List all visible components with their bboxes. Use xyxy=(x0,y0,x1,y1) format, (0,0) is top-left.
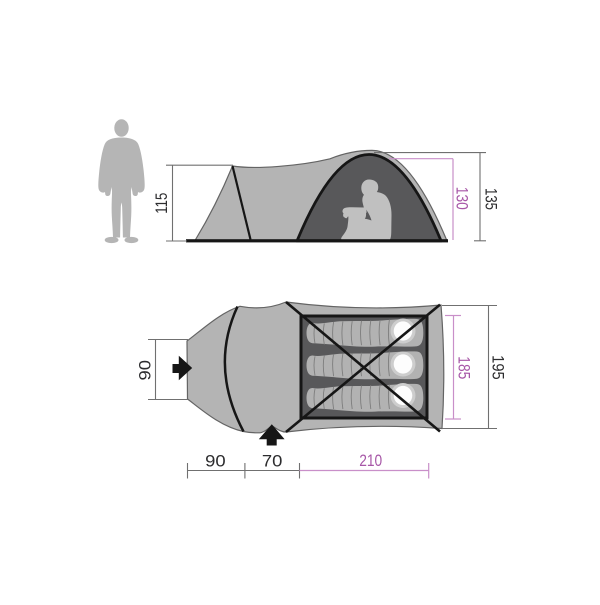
svg-text:210: 210 xyxy=(359,452,382,470)
svg-text:90: 90 xyxy=(136,360,154,381)
svg-text:90: 90 xyxy=(205,452,226,470)
svg-text:70: 70 xyxy=(262,452,283,470)
svg-text:185: 185 xyxy=(455,356,473,379)
svg-text:115: 115 xyxy=(153,193,171,214)
svg-text:135: 135 xyxy=(482,188,500,210)
svg-text:195: 195 xyxy=(489,355,507,380)
svg-text:130: 130 xyxy=(453,187,471,210)
